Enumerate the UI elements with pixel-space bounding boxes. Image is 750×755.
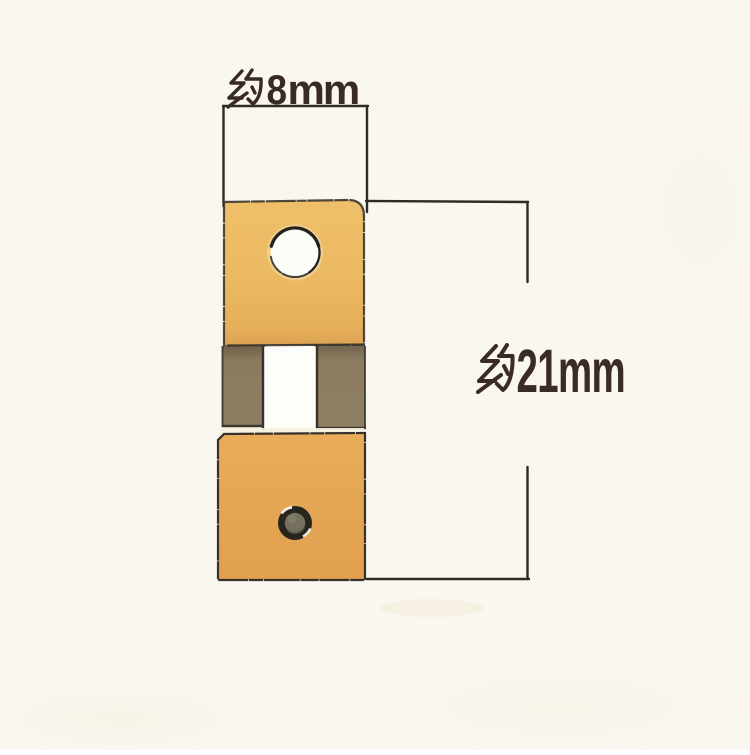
svg-text:mm: mm [288, 66, 359, 113]
svg-text:8: 8 [267, 67, 288, 114]
svg-text:21mm: 21mm [517, 337, 626, 405]
